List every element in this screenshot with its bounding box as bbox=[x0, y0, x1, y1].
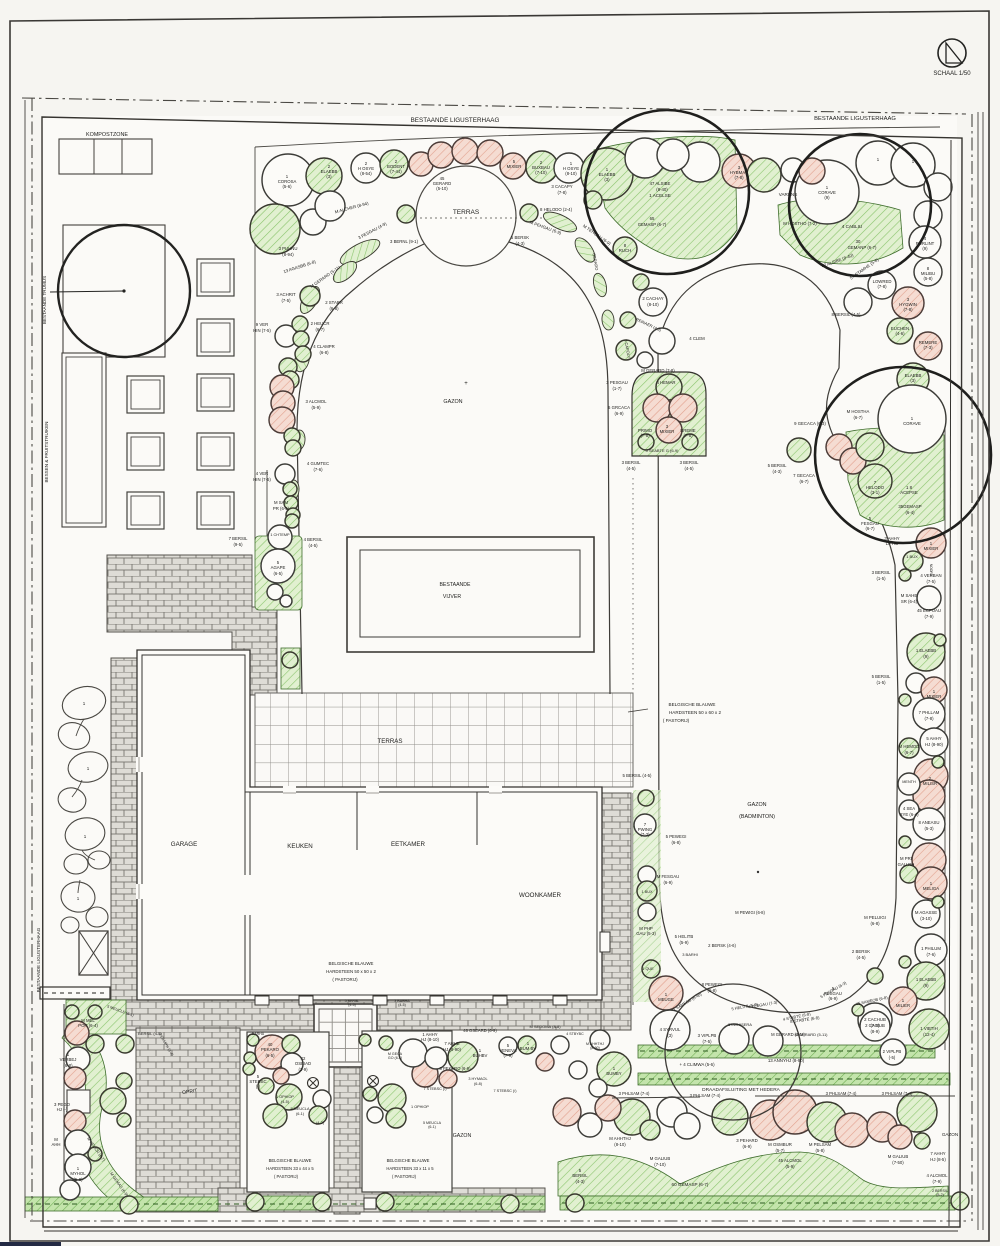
svg-text:(7-8): (7-8) bbox=[734, 175, 744, 180]
svg-text:3 PUHNU: 3 PUHNU bbox=[279, 246, 298, 251]
svg-text:2 CACHAY: 2 CACHAY bbox=[642, 296, 663, 301]
svg-text:TERRAS: TERRAS bbox=[377, 738, 402, 745]
svg-text:(7-50): (7-50) bbox=[892, 1160, 904, 1165]
svg-text:BELGISCHE BLAUWE: BELGISCHE BLAUWE bbox=[269, 1158, 312, 1163]
svg-text:2 CACIUB: 2 CACIUB bbox=[865, 1023, 885, 1028]
svg-text:(5-8): (5-8) bbox=[815, 1148, 825, 1153]
svg-text:(8-54): (8-54) bbox=[360, 171, 372, 176]
svg-text:VERBEJ: VERBEJ bbox=[60, 1057, 77, 1062]
svg-text:(4-5): (4-5) bbox=[626, 466, 636, 471]
svg-text:3 PHLSAM (7-4): 3 PHLSAM (7-4) bbox=[619, 1091, 650, 1096]
svg-text:(-5): (-5) bbox=[889, 1055, 896, 1060]
svg-text:1 BUX: 1 BUX bbox=[906, 554, 918, 559]
svg-text:4 CLEM: 4 CLEM bbox=[689, 336, 705, 341]
svg-text:BUM BV: BUM BV bbox=[520, 1046, 537, 1051]
svg-text:(7-3): (7-3) bbox=[640, 832, 650, 837]
svg-text:(7-10): (7-10) bbox=[654, 1162, 666, 1167]
svg-text:(5-10): (5-10) bbox=[436, 186, 448, 191]
svg-text:(5-8): (5-8) bbox=[73, 1177, 83, 1182]
svg-text:HARDSTEEN 50 x 60 x 2: HARDSTEEN 50 x 60 x 2 bbox=[669, 710, 722, 715]
svg-text:MENTH: MENTH bbox=[902, 780, 916, 784]
svg-text:(5-3): (5-3) bbox=[924, 826, 934, 831]
svg-text:MIXIER: MIXIER bbox=[924, 546, 939, 551]
svg-text:(6-4): (6-4) bbox=[905, 510, 915, 515]
svg-text:(4-3): (4-3) bbox=[515, 241, 525, 246]
svg-text:BESTAANDE LIGUSTERHAAG: BESTAANDE LIGUSTERHAAG bbox=[411, 117, 500, 124]
svg-text:(7-8): (7-8) bbox=[640, 433, 650, 438]
svg-text:(3): (3) bbox=[326, 174, 332, 179]
svg-text:MIXIER: MIXIER bbox=[927, 694, 942, 699]
svg-text:BESTAANDE TRUMUS: BESTAANDE TRUMUS bbox=[42, 276, 47, 324]
svg-text:(1-7): (1-7) bbox=[612, 386, 622, 391]
svg-text:1 BUX: 1 BUX bbox=[642, 890, 653, 894]
svg-text:(3-10): (3-10) bbox=[920, 916, 932, 921]
svg-text:(4-3): (4-3) bbox=[772, 469, 782, 474]
svg-text:(1-5): (1-5) bbox=[876, 576, 886, 581]
svg-text:M SAM: M SAM bbox=[274, 500, 289, 505]
svg-text:(3): (3) bbox=[604, 177, 610, 182]
svg-text:(8-9): (8-9) bbox=[870, 1029, 880, 1034]
svg-text:2 HEUCR: 2 HEUCR bbox=[311, 321, 330, 326]
svg-text:45 ALCMOL: 45 ALCMOL bbox=[778, 1158, 802, 1163]
svg-text:M AGASSE: M AGASSE bbox=[915, 910, 937, 915]
svg-text:13 ANNYHJ (8-90): 13 ANNYHJ (8-90) bbox=[768, 1058, 805, 1063]
svg-text:5 BERSIL (4-5): 5 BERSIL (4-5) bbox=[623, 773, 653, 778]
svg-text:(5-9): (5-9) bbox=[311, 405, 321, 410]
svg-text:46 OSEARD (6-9): 46 OSEARD (6-9) bbox=[463, 1028, 497, 1033]
svg-text:M PELSAM: M PELSAM bbox=[809, 1142, 832, 1147]
svg-text:4 CABLIU: 4 CABLIU bbox=[842, 224, 862, 229]
svg-text:BUHBV: BUHBV bbox=[473, 1053, 488, 1058]
svg-text:7 STEBSC (/): 7 STEBSC (/) bbox=[494, 1089, 518, 1093]
svg-text:1 VIBTIH: 1 VIBTIH bbox=[920, 1026, 937, 1031]
svg-text:M HOSTHO (7-2): M HOSTHO (7-2) bbox=[783, 221, 817, 226]
svg-text:5 BERSK: 5 BERSK bbox=[511, 235, 529, 240]
svg-text:(7-44): (7-44) bbox=[390, 169, 402, 174]
svg-text:(3): (3) bbox=[910, 378, 916, 383]
svg-text:+: + bbox=[464, 381, 468, 387]
svg-text:MILISR: MILISR bbox=[923, 781, 937, 786]
svg-text:M PRI: M PRI bbox=[900, 856, 912, 861]
svg-text:(4-5): (4-5) bbox=[281, 1100, 290, 1104]
svg-text:5 BERSIL: 5 BERSIL bbox=[872, 674, 891, 679]
svg-text:4 SEA: 4 SEA bbox=[903, 806, 915, 811]
svg-text:8 HELODO (2-4): 8 HELODO (2-4) bbox=[540, 207, 573, 212]
svg-text:GAZON: GAZON bbox=[443, 399, 462, 405]
svg-text:(6-8): (6-8) bbox=[870, 921, 880, 926]
svg-text:7 STEBSC (/): 7 STEBSC (/) bbox=[424, 1087, 448, 1091]
svg-text:(9): (9) bbox=[922, 246, 928, 251]
svg-text:(1-5): (1-5) bbox=[876, 680, 886, 685]
svg-text:BERSIL: BERSIL bbox=[572, 1173, 588, 1178]
svg-text:GAZON: GAZON bbox=[453, 1133, 472, 1139]
svg-text:3 PHLSAM (7-4): 3 PHLSAM (7-4) bbox=[690, 1093, 721, 1098]
svg-text:SCHAAL 1/50: SCHAAL 1/50 bbox=[933, 71, 971, 77]
svg-text:OSEIAD: OSEIAD bbox=[295, 1061, 311, 1066]
svg-text:(7-3): (7-3) bbox=[923, 345, 933, 350]
svg-text:5 BERSIL: 5 BERSIL bbox=[768, 463, 787, 468]
svg-text:M AHHTHJ: M AHHTHJ bbox=[609, 1136, 630, 1141]
svg-text:(6-8): (6-8) bbox=[329, 306, 339, 311]
svg-text:HJ (8-90): HJ (8-90) bbox=[925, 742, 943, 747]
svg-text:(6-8): (6-8) bbox=[63, 1063, 73, 1068]
svg-text:7 AHHY: 7 AHHY bbox=[930, 1151, 945, 1156]
svg-text:1 OPHIOP: 1 OPHIOP bbox=[411, 1105, 429, 1109]
svg-text:GEMANP (6-7): GEMANP (6-7) bbox=[848, 245, 877, 250]
svg-text:(7-6): (7-6) bbox=[313, 467, 323, 472]
svg-text:(3-1): (3-1) bbox=[870, 490, 880, 495]
svg-text:HARDSTEEN 33 x 44 x 5: HARDSTEEN 33 x 44 x 5 bbox=[266, 1166, 314, 1171]
svg-text:3 BERSIL: 3 BERSIL bbox=[872, 570, 891, 575]
svg-text:1 OPHIOP: 1 OPHIOP bbox=[276, 1095, 294, 1099]
svg-text:4 VER: 4 VER bbox=[256, 471, 268, 476]
svg-text:5 SEABTE G (6-9): 5 SEABTE G (6-9) bbox=[646, 448, 680, 453]
svg-text:BESTAANDE LIGUSTERHAAG: BESTAANDE LIGUSTERHAAG bbox=[814, 116, 896, 122]
svg-text:4 ALCMOL: 4 ALCMOL bbox=[926, 1173, 948, 1178]
svg-text:(-): (-) bbox=[256, 1084, 261, 1089]
svg-text:MIXIER: MIXIER bbox=[507, 164, 522, 169]
svg-text:8 ANEASU: 8 ANEASU bbox=[918, 820, 939, 825]
svg-text:POR (6-4): POR (6-4) bbox=[78, 1023, 98, 1028]
svg-text:(7-9): (7-9) bbox=[932, 1179, 942, 1184]
svg-text:+ 4 CLIMWA (5-6): + 4 CLIMWA (5-6) bbox=[679, 1062, 715, 1067]
svg-text:MYHOL: MYHOL bbox=[70, 1171, 86, 1176]
svg-text:(6-9): (6-9) bbox=[614, 411, 624, 416]
svg-text:RUCH: RUCH bbox=[619, 248, 631, 253]
svg-text:2 BERSK (4-6): 2 BERSK (4-6) bbox=[708, 943, 736, 948]
svg-text:5 MEUCLA: 5 MEUCLA bbox=[291, 1107, 310, 1111]
svg-text:(7-10): (7-10) bbox=[535, 170, 547, 175]
svg-text:8 BERSIL (4-5): 8 BERSIL (4-5) bbox=[832, 312, 862, 317]
svg-text:6 GRCACA: 6 GRCACA bbox=[608, 405, 630, 410]
svg-text:7 BERSIL: 7 BERSIL bbox=[229, 536, 248, 541]
svg-text:(7-5): (7-5) bbox=[926, 579, 936, 584]
svg-text:( PASTORIJ): ( PASTORIJ) bbox=[392, 1174, 417, 1179]
svg-text:NOORD: NOORD bbox=[929, 564, 933, 577]
svg-text:(4-5): (4-5) bbox=[856, 955, 866, 960]
svg-text:30: 30 bbox=[856, 239, 861, 244]
svg-text:65: 65 bbox=[650, 216, 655, 221]
svg-text:(4-6): (4-6) bbox=[895, 331, 905, 336]
svg-text:(7-8): (7-8) bbox=[903, 307, 913, 312]
svg-text:(7-8): (7-8) bbox=[877, 284, 887, 289]
svg-text:(7-6): (7-6) bbox=[926, 952, 936, 957]
svg-text:(4-3): (4-3) bbox=[575, 1179, 585, 1184]
svg-text:(5-6): (5-6) bbox=[282, 184, 292, 189]
svg-text:1 ELAEBB: 1 ELAEBB bbox=[916, 977, 936, 982]
svg-text:HARDSTEEN 33 x 11 x 5: HARDSTEEN 33 x 11 x 5 bbox=[386, 1166, 434, 1171]
svg-text:M HOSTHA: M HOSTHA bbox=[847, 409, 870, 414]
svg-text:1 QUE: 1 QUE bbox=[642, 967, 654, 971]
svg-text:35GEMASP: 35GEMASP bbox=[898, 504, 921, 509]
svg-text:3 PHLSAM (7-4): 3 PHLSAM (7-4) bbox=[826, 1091, 857, 1096]
svg-text:4 HEMAR: 4 HEMAR bbox=[656, 380, 675, 385]
svg-text:PEKARO: PEKARO bbox=[261, 1047, 280, 1052]
svg-text:HJ (-): HJ (-) bbox=[57, 1107, 68, 1112]
svg-text:3 BERSIL: 3 BERSIL bbox=[622, 460, 641, 465]
svg-text:2 VIPLPB: 2 VIPLPB bbox=[883, 1049, 902, 1054]
svg-text:HJ (8-10): HJ (8-10) bbox=[421, 1037, 439, 1042]
svg-text:1 PHILUM: 1 PHILUM bbox=[921, 946, 941, 951]
svg-text:(6-9): (6-9) bbox=[663, 880, 673, 885]
svg-text:4 CLAMPR: 4 CLAMPR bbox=[313, 344, 335, 349]
svg-text:3 PESGAU: 3 PESGAU bbox=[606, 380, 628, 385]
svg-text:BELGISCHE BLAUWE: BELGISCHE BLAUWE bbox=[669, 702, 716, 707]
svg-text:SR (6-4): SR (6-4) bbox=[901, 599, 918, 604]
svg-text:( PASTORIJ): ( PASTORIJ) bbox=[274, 1174, 299, 1179]
svg-text:(8-10): (8-10) bbox=[614, 1142, 626, 1147]
svg-text:7 PHLLAM: 7 PHLLAM bbox=[919, 710, 940, 715]
svg-text:3 BARHI: 3 BARHI bbox=[682, 952, 698, 957]
svg-text:(6-1): (6-1) bbox=[296, 1112, 305, 1116]
svg-text:(6-5): (6-5) bbox=[273, 571, 283, 576]
svg-text:HARDSTEEN 50 x 50 x 2: HARDSTEEN 50 x 50 x 2 bbox=[326, 969, 376, 974]
svg-text:1 ACELSE: 1 ACELSE bbox=[649, 193, 671, 198]
svg-text:7 GECACA: 7 GECACA bbox=[793, 473, 815, 478]
svg-text:(5-7): (5-7) bbox=[775, 1148, 785, 1153]
svg-text:HIN (7-5): HIN (7-5) bbox=[253, 328, 271, 333]
svg-text:7 AHHE: 7 AHHE bbox=[444, 1041, 459, 1046]
svg-text:(6-8): (6-8) bbox=[671, 840, 681, 845]
svg-text:(9): (9) bbox=[923, 983, 929, 988]
svg-text:BELGISCHE BLAUWE: BELGISCHE BLAUWE bbox=[329, 961, 374, 966]
svg-text:(BADMINTON): (BADMINTON) bbox=[739, 814, 775, 820]
svg-text:GO (6-4): GO (6-4) bbox=[388, 1056, 402, 1060]
svg-text:5 PEWEGI: 5 PEWEGI bbox=[666, 834, 687, 839]
svg-text:3 LWHISERA: 3 LWHISERA bbox=[728, 1022, 752, 1027]
svg-text:(7-8): (7-8) bbox=[924, 716, 934, 721]
svg-text:(5-2): (5-2) bbox=[936, 1193, 944, 1197]
svg-text:4 STBYBC: 4 STBYBC bbox=[566, 1032, 584, 1036]
svg-text:KOMPOSTZONE: KOMPOSTZONE bbox=[86, 132, 128, 138]
svg-text:(7-8): (7-8) bbox=[683, 433, 693, 438]
svg-text:M PEWIGI (6-8): M PEWIGI (6-8) bbox=[735, 910, 765, 915]
svg-text:BESSEN & FRUITSTRUIKEN: BESSEN & FRUITSTRUIKEN bbox=[44, 421, 49, 482]
svg-text:(8-10): (8-10) bbox=[565, 171, 577, 176]
svg-text:1 ELAEBB: 1 ELAEBB bbox=[916, 648, 936, 653]
svg-text:GARAGE: GARAGE bbox=[171, 841, 197, 848]
svg-text:M GALIUB: M GALIUB bbox=[650, 1156, 671, 1161]
svg-text:(7-5): (7-5) bbox=[281, 298, 291, 303]
svg-text:(12-4): (12-4) bbox=[923, 1032, 935, 1037]
svg-text:(4-5): (4-5) bbox=[398, 1003, 406, 1007]
svg-text:(9-5): (9-5) bbox=[233, 542, 243, 547]
svg-text:3 ALCMOL: 3 ALCMOL bbox=[305, 399, 327, 404]
svg-text:CORAVE: CORAVE bbox=[903, 421, 921, 426]
svg-text:GEMASP (6-7): GEMASP (6-7) bbox=[638, 222, 667, 227]
svg-text:TERRAS: TERRAS bbox=[453, 209, 480, 216]
svg-text:3 CACAPY: 3 CACAPY bbox=[551, 184, 572, 189]
svg-text:MILIER: MILIER bbox=[896, 1003, 910, 1008]
svg-text:( PASTORIJ): ( PASTORIJ) bbox=[332, 977, 358, 982]
svg-text:2 STABR: 2 STABR bbox=[325, 300, 343, 305]
svg-text:(4-2): (4-2) bbox=[316, 1121, 325, 1125]
svg-text:3 PHLSAM (7-4): 3 PHLSAM (7-4) bbox=[882, 1091, 913, 1096]
svg-text:M GERARD (5-M): M GERARD (5-M) bbox=[771, 1032, 805, 1037]
svg-text:(6-5): (6-5) bbox=[265, 1053, 275, 1058]
svg-text:HJ (8-5): HJ (8-5) bbox=[930, 1157, 946, 1162]
svg-text:GAZON: GAZON bbox=[747, 802, 766, 808]
svg-text:(7-8): (7-8) bbox=[557, 190, 567, 195]
svg-text:45 ECPUAU: 45 ECPUAU bbox=[917, 608, 941, 613]
svg-text:60 GEMASP (6-7): 60 GEMASP (6-7) bbox=[672, 1182, 709, 1187]
svg-text:(6-7): (6-7) bbox=[315, 327, 325, 332]
svg-text:4 GUMTEC: 4 GUMTEC bbox=[307, 461, 329, 466]
svg-text:4 BERSIL: 4 BERSIL bbox=[304, 537, 323, 542]
svg-text:BELGISCHE BLAUWE: BELGISCHE BLAUWE bbox=[387, 1158, 430, 1163]
svg-text:BARHA: BARHA bbox=[252, 1032, 265, 1036]
svg-text:(6-7): (6-7) bbox=[904, 750, 914, 755]
svg-text:3 PEHARD: 3 PEHARD bbox=[736, 1138, 758, 1143]
svg-text:EETKAMER: EETKAMER bbox=[391, 841, 426, 848]
svg-text:(8-40): (8-40) bbox=[656, 187, 668, 192]
svg-text:VARENS: VARENS bbox=[779, 192, 798, 197]
svg-text:4 SYRVUL: 4 SYRVUL bbox=[660, 1027, 681, 1032]
svg-text:AGAPE: AGAPE bbox=[271, 565, 286, 570]
svg-text:LP HO: LP HO bbox=[886, 541, 899, 546]
svg-text:2 CACHUB: 2 CACHUB bbox=[864, 1017, 886, 1022]
svg-text:(7-9): (7-9) bbox=[503, 1053, 513, 1058]
svg-text:3 BERNL (9-1): 3 BERNL (9-1) bbox=[390, 239, 419, 244]
svg-text:(6-7): (6-7) bbox=[865, 526, 875, 531]
svg-text:AHH: AHH bbox=[51, 1142, 60, 1147]
svg-text:(6-8): (6-8) bbox=[707, 988, 717, 993]
svg-text:(8-10): (8-10) bbox=[647, 302, 659, 307]
svg-text:(6-8): (6-8) bbox=[319, 350, 329, 355]
svg-text:3 VIPLPB: 3 VIPLPB bbox=[698, 1033, 717, 1038]
svg-text:9 VER: 9 VER bbox=[256, 322, 268, 327]
svg-text:BESTAANDE LIGUSTERHAAG: BESTAANDE LIGUSTERHAAG bbox=[36, 927, 41, 992]
svg-text:(4-5): (4-5) bbox=[348, 1003, 356, 1007]
svg-text:ACEPSE: ACEPSE bbox=[900, 490, 918, 495]
svg-text:M SEDOMA (8-8): M SEDOMA (8-8) bbox=[529, 1024, 561, 1029]
svg-text:HIN (7-5): HIN (7-5) bbox=[253, 477, 271, 482]
svg-text:(8-94): (8-94) bbox=[282, 252, 294, 257]
svg-text:HJ (8-90): HJ (8-90) bbox=[443, 1047, 461, 1052]
svg-text:(5-8): (5-8) bbox=[923, 276, 933, 281]
svg-text:PR (6-5): PR (6-5) bbox=[273, 506, 290, 511]
svg-text:GAZON: GAZON bbox=[942, 1132, 958, 1137]
svg-text:3 HYMAOL: 3 HYMAOL bbox=[468, 1077, 487, 1081]
svg-text:( PASTORIJ): ( PASTORIJ) bbox=[663, 718, 690, 723]
svg-text:M HEMOD: M HEMOD bbox=[899, 744, 920, 749]
svg-text:GAU (5-3): GAU (5-3) bbox=[636, 931, 656, 936]
svg-text:(7-5): (7-5) bbox=[702, 1039, 712, 1044]
svg-text:8 PEWEGI: 8 PEWEGI bbox=[702, 982, 723, 987]
svg-text:(4-5): (4-5) bbox=[308, 543, 318, 548]
svg-text:(6-1): (6-1) bbox=[428, 1125, 436, 1129]
svg-text:(6-8): (6-8) bbox=[474, 1082, 483, 1086]
svg-text:GAU RH: GAU RH bbox=[898, 862, 915, 867]
svg-text:M GERARD (7-8): M GERARD (7-8) bbox=[641, 368, 675, 373]
svg-text:(5-9): (5-9) bbox=[679, 940, 689, 945]
svg-text:(6-7): (6-7) bbox=[799, 479, 809, 484]
svg-text:MIXIER: MIXIER bbox=[660, 429, 675, 434]
svg-text:3 BERSIL: 3 BERSIL bbox=[680, 460, 699, 465]
svg-text:VIJVER: VIJVER bbox=[443, 594, 461, 600]
svg-text:M GALIUB: M GALIUB bbox=[888, 1154, 909, 1159]
svg-text:1 CHTEMP: 1 CHTEMP bbox=[270, 533, 290, 537]
svg-text:(8-90): (8-90) bbox=[590, 1046, 600, 1050]
svg-text:WOONKAMER: WOONKAMER bbox=[519, 892, 561, 899]
svg-text:9 GECACA (6-3): 9 GECACA (6-3) bbox=[794, 421, 826, 426]
svg-text:47 ALSIBE: 47 ALSIBE bbox=[650, 181, 671, 186]
svg-text:3 PEKARO (6-9): 3 PEKARO (6-9) bbox=[440, 1066, 472, 1071]
svg-text:(7-9): (7-9) bbox=[924, 614, 934, 619]
svg-text:(3): (3) bbox=[667, 1033, 673, 1038]
svg-text:M FESGAU: M FESGAU bbox=[657, 874, 679, 879]
svg-text:(6-7): (6-7) bbox=[853, 415, 863, 420]
svg-text:3 ACHRIT: 3 ACHRIT bbox=[276, 292, 296, 297]
svg-text:(9): (9) bbox=[824, 195, 830, 200]
svg-text:RYE (6-4): RYE (6-4) bbox=[899, 812, 919, 817]
svg-text:(6-9): (6-9) bbox=[742, 1144, 752, 1149]
svg-text:(5-9): (5-9) bbox=[785, 1164, 795, 1169]
svg-text:KEUKEN: KEUKEN bbox=[287, 843, 312, 850]
svg-text:(3-9): (3-9) bbox=[298, 1067, 308, 1072]
svg-text:MELIGA: MELIGA bbox=[923, 886, 939, 891]
svg-text:2 BERSK: 2 BERSK bbox=[852, 949, 870, 954]
svg-text:M SAHE: M SAHE bbox=[901, 593, 918, 598]
svg-text:MEUGE: MEUGE bbox=[658, 997, 674, 1002]
svg-text:5 HELITB: 5 HELITB bbox=[675, 934, 694, 939]
svg-text:(4-5): (4-5) bbox=[684, 466, 694, 471]
svg-text:(9): (9) bbox=[923, 654, 929, 659]
svg-text:BUMBY: BUMBY bbox=[606, 1071, 621, 1076]
svg-text:M OSMBUR: M OSMBUR bbox=[768, 1142, 792, 1147]
svg-text:5 AHHY: 5 AHHY bbox=[926, 736, 941, 741]
svg-text:BESTAANDE: BESTAANDE bbox=[439, 582, 471, 588]
svg-text:M PELUIGI: M PELUIGI bbox=[864, 915, 886, 920]
svg-text:(6-9): (6-9) bbox=[828, 996, 838, 1001]
